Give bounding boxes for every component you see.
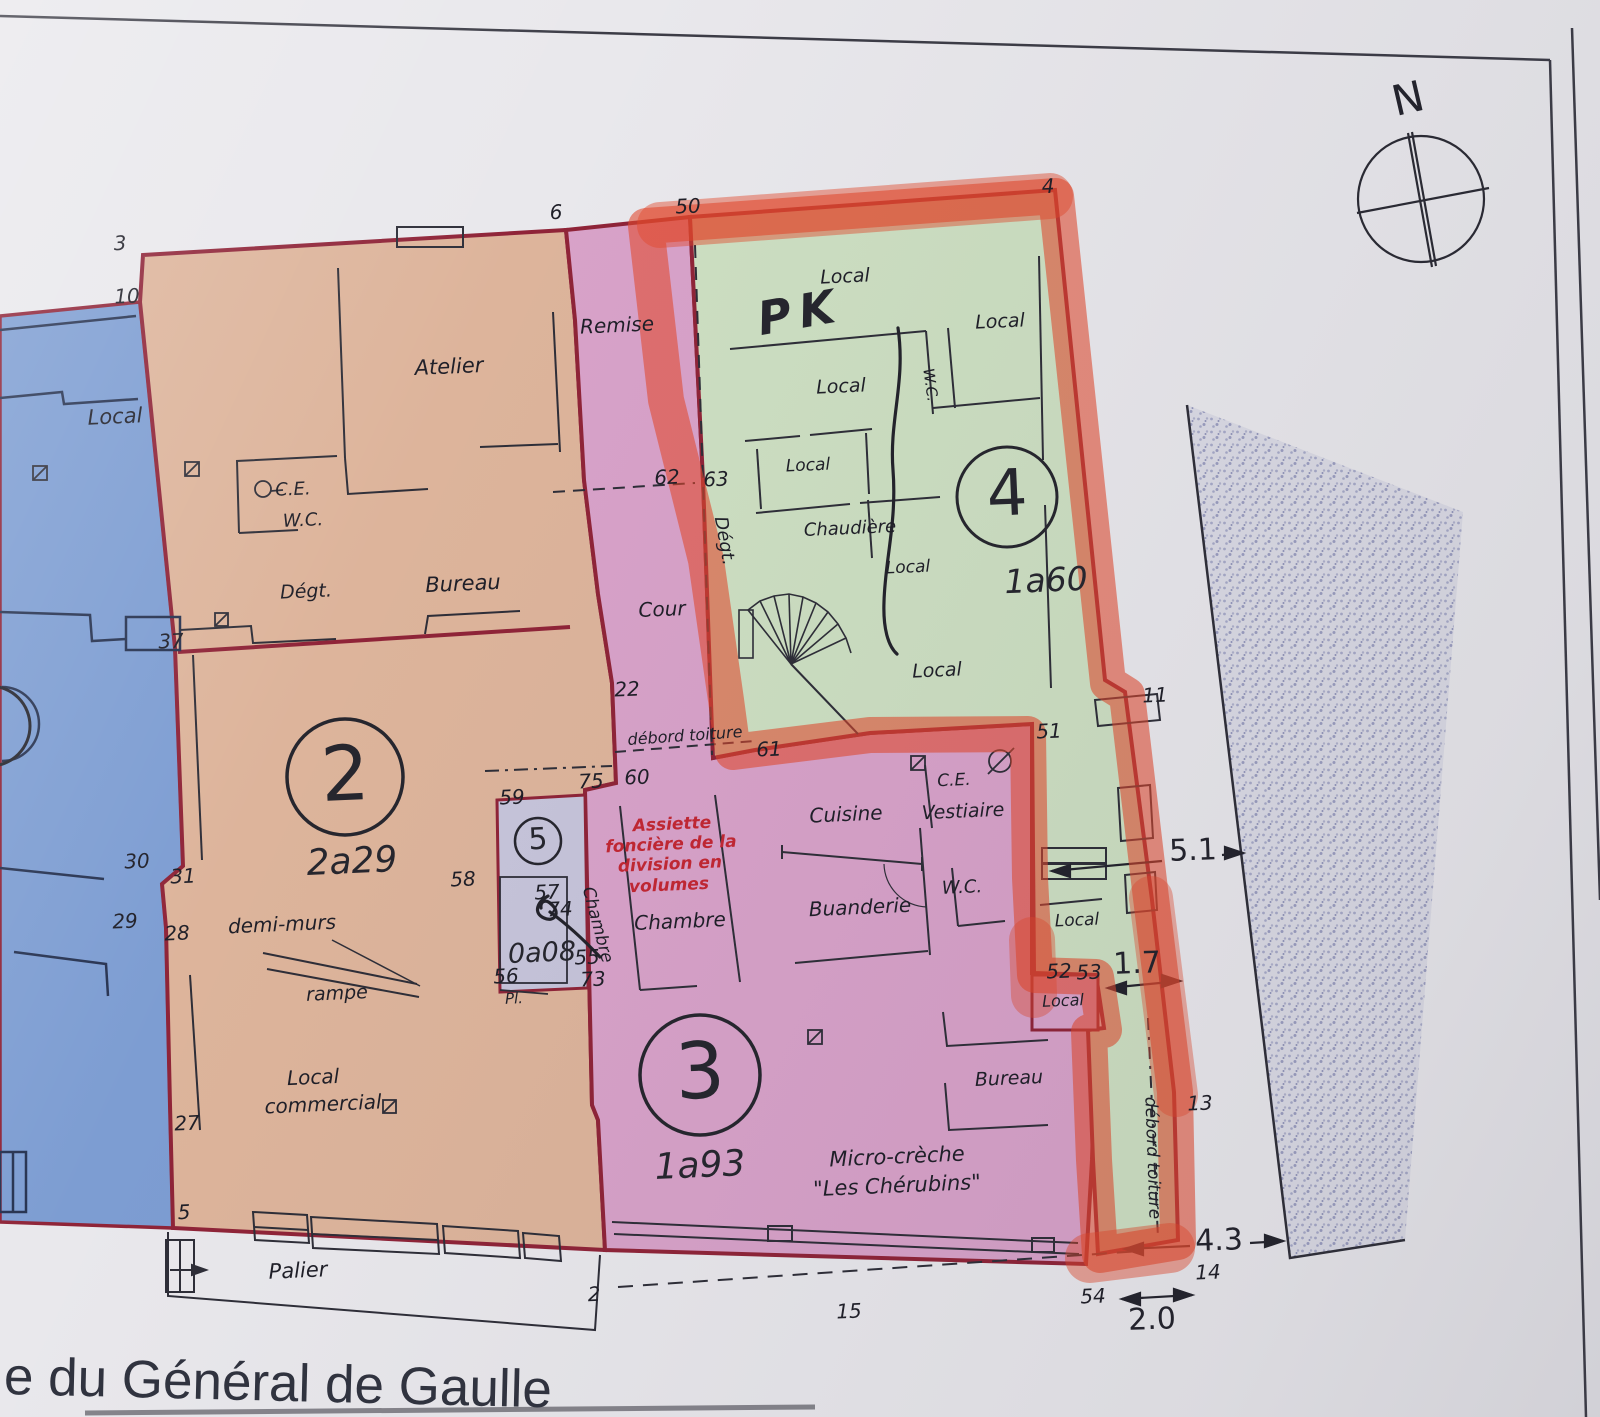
point-58: 58 bbox=[450, 868, 476, 889]
point-15: 15 bbox=[836, 1300, 862, 1321]
point-50: 50 bbox=[675, 195, 701, 216]
point-52: 52 bbox=[1046, 960, 1072, 981]
point-51: 51 bbox=[1036, 720, 1062, 741]
point-30: 30 bbox=[124, 850, 150, 871]
point-27: 27 bbox=[174, 1112, 200, 1133]
point-61: 61 bbox=[756, 738, 782, 759]
point-4: 4 bbox=[1041, 176, 1055, 197]
point-55: 55 bbox=[574, 946, 600, 967]
point-75: 75 bbox=[578, 770, 604, 791]
volume3-area: 1a93 bbox=[654, 1146, 746, 1186]
point-59: 59 bbox=[499, 786, 525, 807]
point-73: 73 bbox=[580, 968, 606, 989]
point-28: 28 bbox=[164, 922, 190, 943]
point-60: 60 bbox=[624, 766, 650, 787]
dimension-2-0: 2.0 bbox=[1128, 1304, 1177, 1336]
point-2: 2 bbox=[587, 1284, 601, 1305]
volume2-number: 2 bbox=[319, 735, 371, 813]
point-6: 6 bbox=[549, 202, 563, 223]
point-54: 54 bbox=[1080, 1285, 1106, 1306]
dimension-1-7: 1.7 bbox=[1113, 948, 1162, 980]
volume2-area: 2a29 bbox=[306, 842, 398, 882]
point-3: 3 bbox=[113, 233, 127, 254]
point-13: 13 bbox=[1187, 1092, 1213, 1113]
point-11: 11 bbox=[1142, 684, 1168, 705]
point-5: 5 bbox=[177, 1202, 191, 1223]
point-31: 31 bbox=[170, 865, 196, 886]
point-14: 14 bbox=[1195, 1261, 1221, 1282]
point-62: 62 bbox=[654, 466, 680, 487]
street-caption: e du Général de Gaulle bbox=[3, 1346, 552, 1417]
dimension-4-3: 4.3 bbox=[1195, 1225, 1244, 1257]
point-74: 74 bbox=[547, 898, 573, 919]
point-29: 29 bbox=[112, 910, 138, 931]
volume4-number: 4 bbox=[985, 461, 1028, 527]
point-10: 10 bbox=[114, 285, 140, 306]
point-56: 56 bbox=[493, 965, 519, 986]
point-37: 37 bbox=[158, 630, 184, 651]
point-22: 22 bbox=[614, 678, 640, 699]
volume-circles bbox=[0, 0, 1600, 1417]
point-53: 53 bbox=[1076, 961, 1102, 982]
volume4-area: 1a60 bbox=[1004, 562, 1089, 599]
point-63: 63 bbox=[703, 468, 729, 489]
volume3-number: 3 bbox=[674, 1032, 727, 1112]
volume1-partial-circle bbox=[0, 686, 30, 766]
dimension-5-1: 5.1 bbox=[1169, 835, 1218, 867]
cadastral-plan-photo: Local Atelier C.E. W.C. Dégt. Bureau dem… bbox=[0, 0, 1600, 1417]
volume5-number: 5 bbox=[528, 825, 548, 856]
